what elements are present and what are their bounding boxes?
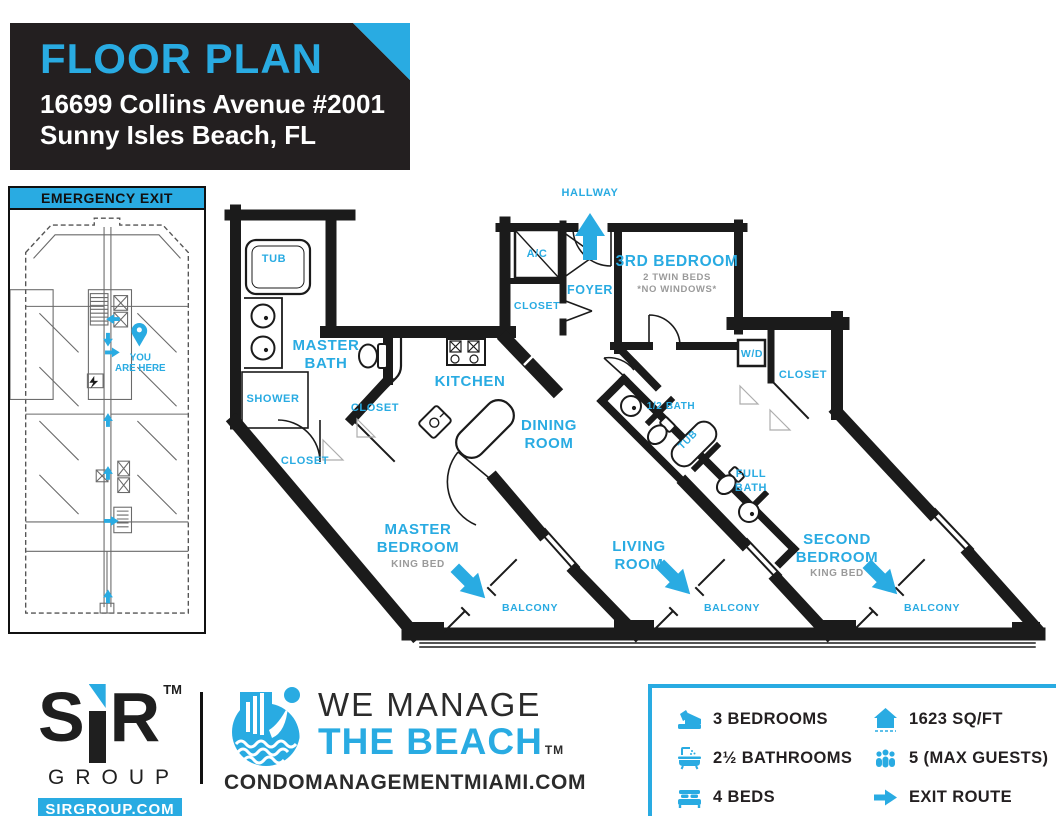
- header-box: FLOOR PLAN 16699 Collins Avenue #2001 Su…: [10, 23, 410, 170]
- flyer-page: FLOOR PLAN 16699 Collins Avenue #2001 Su…: [0, 0, 1056, 816]
- sink-fixture: [739, 502, 759, 522]
- master-bedroom-label-1: MASTER: [385, 521, 452, 538]
- floor-plan: HALLWAY TUB MASTER BATH SHOWER CLOSET CL…: [222, 182, 1056, 660]
- wd-label: W/D: [741, 348, 763, 360]
- hallway-exit-arrow: [575, 213, 605, 260]
- hallway-label: HALLWAY: [562, 187, 619, 199]
- second-closet-label: CLOSET: [779, 369, 827, 381]
- bed-icon: [676, 706, 703, 733]
- third-bedroom-label: 3RD BEDROOM: [616, 253, 739, 270]
- master-bedroom-sub: KING BED: [391, 559, 445, 570]
- sir-i-mark: [89, 684, 106, 763]
- ac-label: A/C: [527, 248, 548, 260]
- foyer-closet-label: CLOSET: [514, 300, 560, 312]
- full-bath-label-2: BATH: [735, 482, 767, 494]
- stat-label: 2½ BATHROOMS: [713, 749, 852, 768]
- stat-exit-route: EXIT ROUTE: [872, 784, 1056, 811]
- beach-brand-block: WE MANAGE THE BEACHTM CONDOMANAGEMENTMIA…: [224, 682, 644, 795]
- master-bath-label-2: BATH: [305, 355, 348, 372]
- kitchen-label: KITCHEN: [435, 373, 506, 390]
- master-bedroom-label-2: BEDROOM: [377, 539, 460, 556]
- full-bath-label-1: FULL: [736, 468, 767, 480]
- property-stats-box: 3 BEDROOMS 1623 SQ/FT 2½ BATHROOMS: [648, 684, 1056, 816]
- foyer-label: FOYER: [567, 283, 613, 297]
- sink-fixture: [252, 305, 275, 328]
- unit-walls: [10, 227, 188, 613]
- sink-fixture: [252, 337, 275, 360]
- beach-logo-icon: [224, 682, 310, 768]
- stat-label: 4 BEDS: [713, 788, 775, 807]
- stat-bedrooms: 3 BEDROOMS: [676, 706, 872, 733]
- electrical-icon: [89, 376, 98, 389]
- master-tub-label: TUB: [262, 253, 286, 265]
- dining-label-1: DINING: [521, 417, 577, 434]
- sir-letter-s: S: [38, 684, 85, 750]
- address-line2: Sunny Isles Beach, FL: [40, 120, 385, 151]
- kitchen-island: [450, 394, 519, 463]
- emergency-exit-map: YOU ARE HERE: [8, 210, 206, 634]
- bath-icon: [676, 745, 703, 772]
- beds-icon: [676, 784, 703, 811]
- stat-guests: 5 (MAX GUESTS): [872, 745, 1056, 772]
- stat-label: 3 BEDROOMS: [713, 710, 828, 729]
- sir-website: SIRGROUP.COM: [38, 798, 181, 816]
- third-bedroom-sub2: *NO WINDOWS*: [637, 284, 717, 295]
- kitchen-sink: [418, 405, 452, 439]
- stat-sqft: 1623 SQ/FT: [872, 706, 1056, 733]
- balcony-label-living: BALCONY: [704, 602, 760, 614]
- master-bath-label-1: MASTER: [293, 337, 360, 354]
- shower-label: SHOWER: [246, 393, 299, 405]
- second-bedroom-label-1: SECOND: [803, 531, 871, 548]
- master-closet-label: CLOSET: [281, 455, 329, 467]
- property-address: 16699 Collins Avenue #2001 Sunny Isles B…: [40, 89, 385, 151]
- sir-letter-r: R: [110, 684, 161, 750]
- tagline-line2: THE BEACHTM: [318, 723, 564, 762]
- exit-arrow-icon: [872, 784, 899, 811]
- balcony-label-master: BALCONY: [502, 602, 558, 614]
- footer-divider: [200, 692, 203, 784]
- third-bedroom-sub1: 2 TWIN BEDS: [643, 272, 711, 283]
- sir-group-logo: S R TM GROUP SIRGROUP.COM: [28, 684, 192, 816]
- sink-fixture: [621, 396, 641, 416]
- hall-closet-label: CLOSET: [351, 402, 399, 414]
- balcony-exit-arrow: [446, 559, 495, 608]
- sir-trademark: TM: [163, 682, 182, 697]
- sir-group-text: GROUP: [36, 766, 192, 790]
- toilet-fixture: [359, 344, 387, 368]
- management-website: CONDOMANAGEMENTMIAMI.COM: [224, 771, 644, 795]
- stat-label: 1623 SQ/FT: [909, 710, 1003, 729]
- second-bedroom-sub: KING BED: [810, 568, 864, 579]
- beach-tagline: WE MANAGE THE BEACHTM: [318, 688, 564, 761]
- sir-i-bar: [89, 711, 106, 763]
- stat-label: 5 (MAX GUESTS): [909, 749, 1048, 768]
- beach-brand-row: WE MANAGE THE BEACHTM: [224, 682, 644, 768]
- guests-icon: [872, 745, 899, 772]
- address-line1: 16699 Collins Avenue #2001: [40, 89, 385, 120]
- stats-grid: 3 BEDROOMS 1623 SQ/FT 2½ BATHROOMS: [676, 706, 1056, 811]
- emergency-exit-title: EMERGENCY EXIT: [8, 186, 206, 210]
- you-are-here-line1: YOU: [130, 352, 151, 363]
- beach-trademark: TM: [545, 743, 564, 757]
- you-are-here-marker: YOU ARE HERE: [115, 323, 166, 374]
- page-title: FLOOR PLAN: [40, 35, 323, 83]
- half-bath-label: 1/2 BATH: [647, 401, 696, 412]
- balcony-label-second: BALCONY: [904, 602, 960, 614]
- dining-label-2: ROOM: [524, 435, 573, 452]
- tagline-line1: WE MANAGE: [318, 688, 564, 723]
- stat-bathrooms: 2½ BATHROOMS: [676, 745, 872, 772]
- second-bedroom-label-2: BEDROOM: [796, 549, 879, 566]
- you-are-here-line2: ARE HERE: [115, 363, 166, 374]
- sir-triangle-icon: [89, 684, 106, 708]
- stat-beds: 4 BEDS: [676, 784, 872, 811]
- walls-layer: [230, 210, 1039, 647]
- living-room-label-2: ROOM: [614, 556, 663, 573]
- sir-wordmark: S R TM: [28, 684, 192, 762]
- stat-label: EXIT ROUTE: [909, 788, 1012, 807]
- house-icon: [872, 706, 899, 733]
- living-room-label-1: LIVING: [612, 538, 666, 555]
- emergency-exit-panel: EMERGENCY EXIT: [8, 186, 206, 639]
